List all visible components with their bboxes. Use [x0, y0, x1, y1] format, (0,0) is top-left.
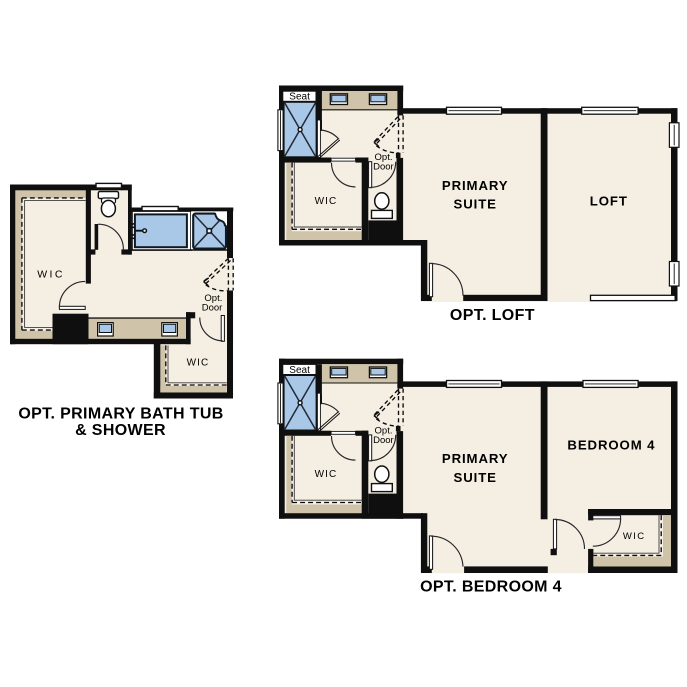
svg-text:OPT. PRIMARY BATH TUB: OPT. PRIMARY BATH TUB	[18, 406, 223, 423]
svg-text:LOFT: LOFT	[590, 194, 628, 209]
svg-text:OPT. LOFT: OPT. LOFT	[450, 307, 535, 324]
svg-text:WIC: WIC	[623, 531, 646, 542]
svg-text:PRIMARY: PRIMARY	[442, 178, 509, 193]
svg-text:Door: Door	[373, 435, 394, 446]
svg-text:SUITE: SUITE	[454, 197, 497, 212]
svg-text:Door: Door	[373, 162, 394, 173]
svg-text:WIC: WIC	[37, 269, 65, 281]
svg-text:OPT. BEDROOM 4: OPT. BEDROOM 4	[420, 579, 562, 596]
svg-text:SUITE: SUITE	[454, 470, 497, 485]
svg-text:BEDROOM 4: BEDROOM 4	[567, 437, 655, 452]
svg-text:PRIMARY: PRIMARY	[442, 451, 509, 466]
svg-text:& SHOWER: & SHOWER	[75, 422, 166, 439]
svg-text:WIC: WIC	[187, 358, 210, 369]
svg-text:WIC: WIC	[315, 469, 338, 480]
svg-text:Door: Door	[202, 302, 223, 313]
svg-text:WIC: WIC	[315, 196, 338, 207]
